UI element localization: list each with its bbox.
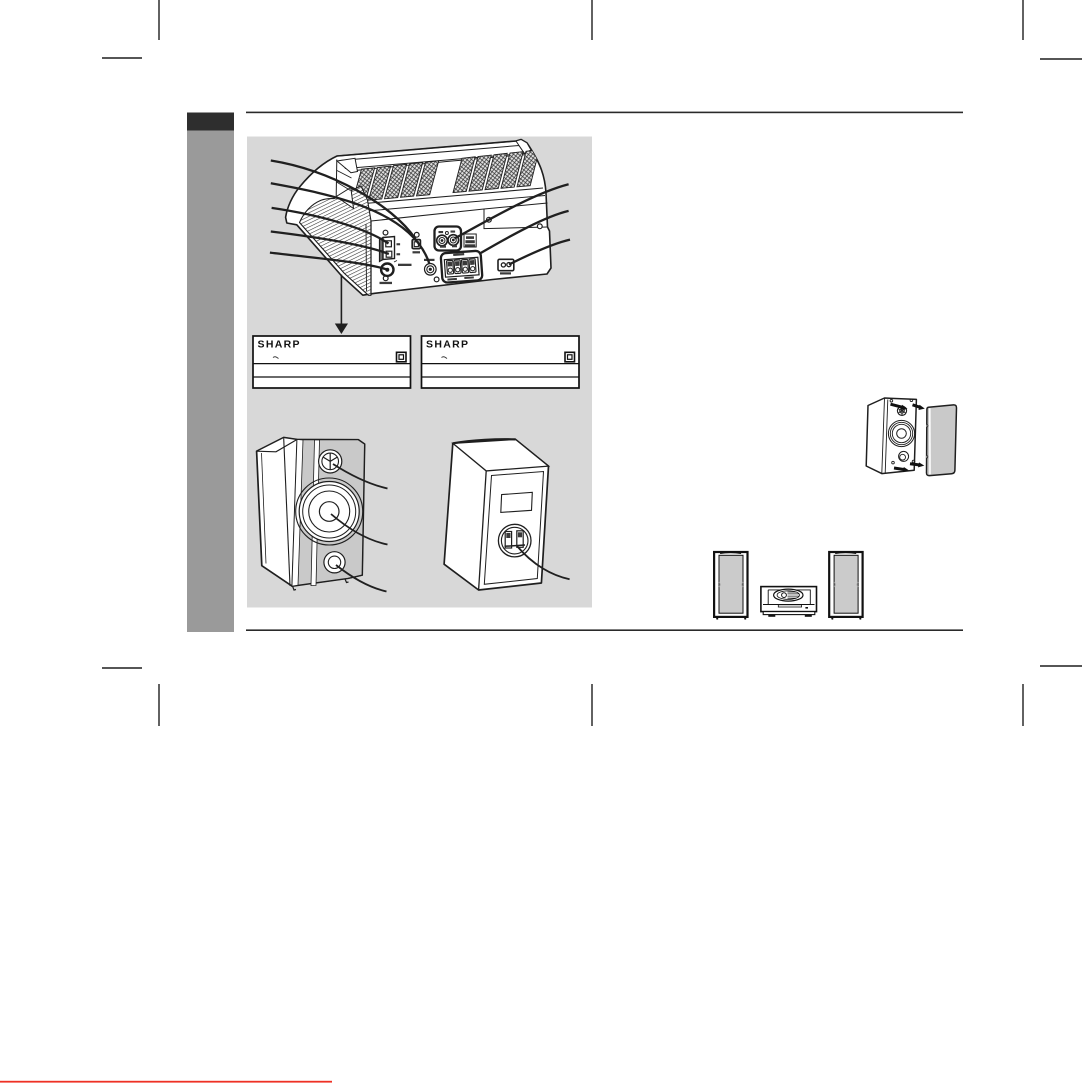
svg-text:SHARP: SHARP: [258, 339, 301, 351]
svg-text:SHARP: SHARP: [426, 339, 469, 351]
